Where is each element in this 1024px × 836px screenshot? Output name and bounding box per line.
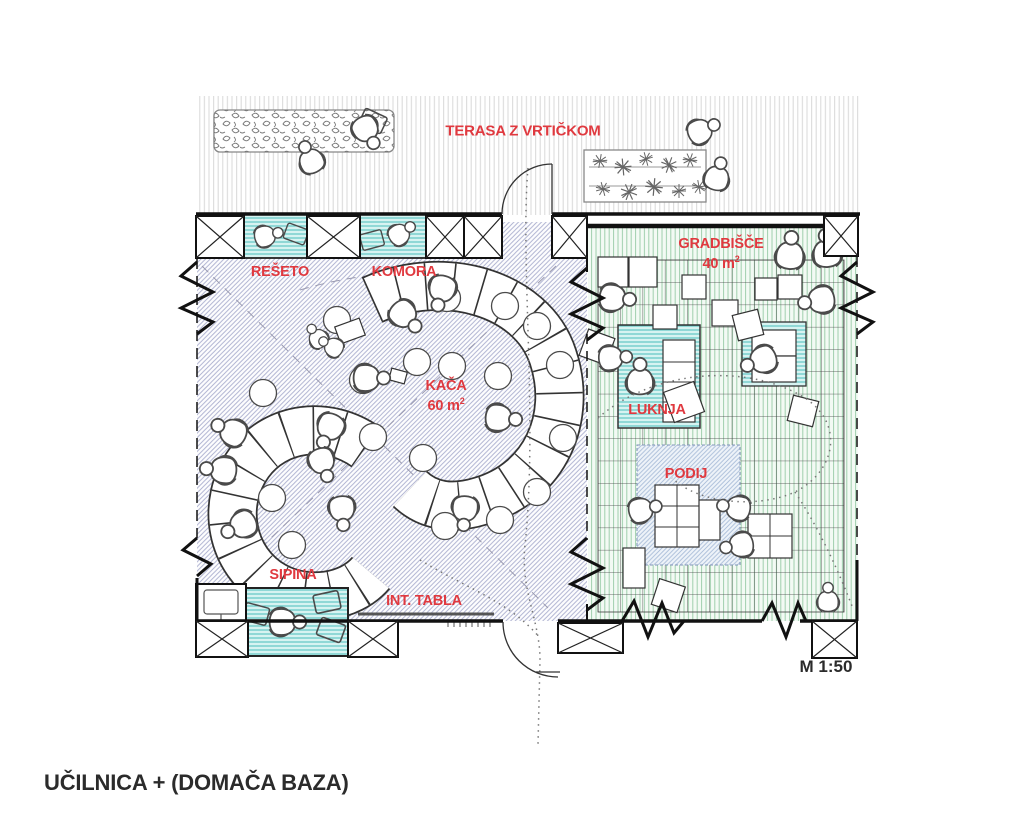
floor-plan-page: TERASA Z VRTIČKOM REŠETO KOMORA GRADBIŠČ… xyxy=(0,0,1024,836)
area-label-reseto: REŠETO xyxy=(251,265,309,280)
gradbisce-area: 40 m2 xyxy=(678,255,763,271)
area-label-gradbisce: GRADBIŠČE 40 m2 xyxy=(678,237,763,271)
sink xyxy=(196,584,246,621)
area-label-komora: KOMORA xyxy=(372,265,437,280)
kaca-area: 60 m2 xyxy=(425,397,466,413)
door-bottom xyxy=(503,622,560,677)
page-title: UČILNICA + (DOMAČA BAZA) xyxy=(44,770,349,796)
alcove-reseto xyxy=(244,214,309,258)
area-label-podij: PODIJ xyxy=(665,467,708,482)
room-kaca xyxy=(197,222,587,621)
area-label-terasa: TERASA Z VRTIČKOM xyxy=(445,124,600,139)
area-label-kaca: KAČA 60 m2 xyxy=(425,379,466,413)
area-label-int-tabla: INT. TABLA xyxy=(386,594,462,609)
room-gradbisce xyxy=(579,228,858,621)
terrace-decking xyxy=(196,96,860,215)
gradbisce-name: GRADBIŠČE xyxy=(678,237,763,252)
scale-label: M 1:50 xyxy=(800,657,853,677)
planter-box-right xyxy=(584,150,709,203)
area-label-luknja: LUKNJA xyxy=(628,403,686,418)
area-label-sipina: SIPINA xyxy=(269,568,316,583)
kaca-name: KAČA xyxy=(425,379,466,394)
